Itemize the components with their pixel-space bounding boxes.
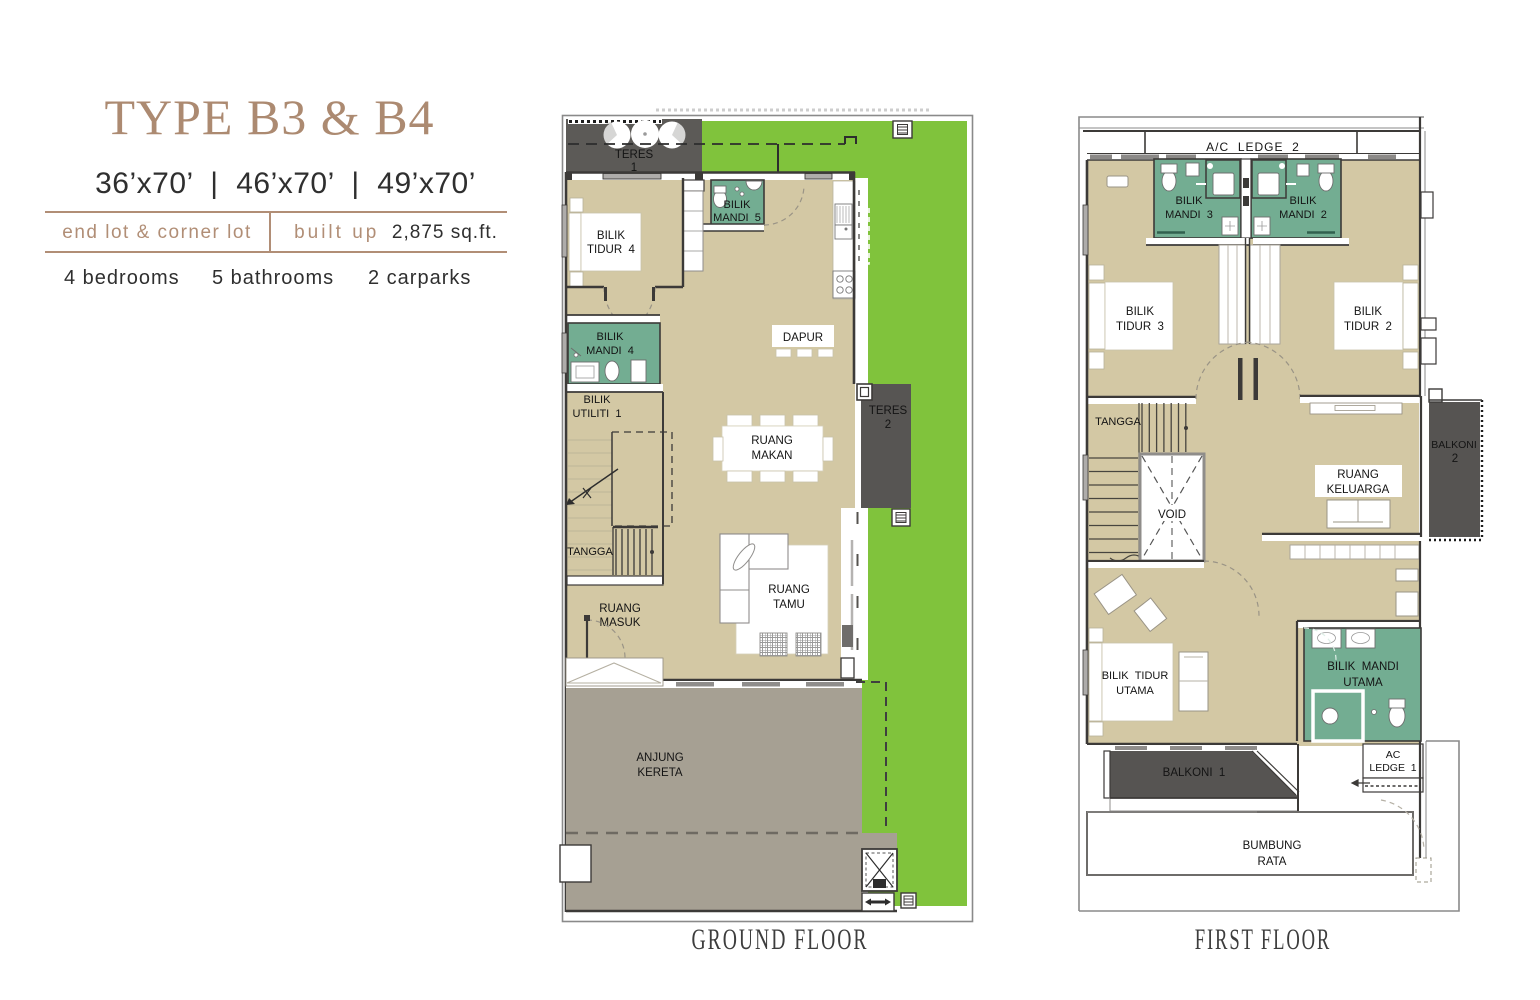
svg-text:BALKONI 1: BALKONI 1 (1163, 767, 1226, 779)
svg-text:BILIK: BILIK (1176, 195, 1204, 207)
svg-text:BUMBUNG: BUMBUNG (1243, 840, 1302, 852)
svg-text:LEDGE 1: LEDGE 1 (1369, 762, 1416, 774)
svg-text:AC: AC (1386, 749, 1401, 761)
svg-text:BILIK: BILIK (1126, 306, 1154, 318)
svg-text:TAMU: TAMU (773, 599, 805, 611)
svg-text:2: 2 (1452, 453, 1458, 465)
svg-text:ANJUNG: ANJUNG (636, 752, 683, 764)
svg-text:RUANG: RUANG (751, 435, 793, 447)
svg-text:RUANG: RUANG (768, 584, 810, 596)
svg-text:TIDUR 4: TIDUR 4 (587, 244, 636, 256)
svg-text:BILIK MANDI: BILIK MANDI (1327, 661, 1399, 673)
svg-text:MANDI 2: MANDI 2 (1279, 209, 1327, 221)
svg-text:MANDI 3: MANDI 3 (1165, 209, 1213, 221)
svg-text:MAKAN: MAKAN (752, 450, 793, 462)
svg-text:TERES: TERES (615, 149, 654, 161)
svg-text:BILIK TIDUR: BILIK TIDUR (1102, 670, 1169, 682)
svg-text:A/C LEDGE 2: A/C LEDGE 2 (1206, 140, 1300, 154)
svg-text:RUANG: RUANG (1337, 469, 1379, 481)
svg-text:RATA: RATA (1258, 856, 1287, 868)
svg-text:VOID: VOID (1158, 509, 1186, 521)
svg-text:2: 2 (885, 419, 891, 431)
svg-text:MANDI 5: MANDI 5 (713, 212, 761, 224)
svg-text:MASUK: MASUK (600, 617, 641, 629)
svg-text:TIDUR 2: TIDUR 2 (1344, 321, 1392, 333)
svg-text:UTILITI 1: UTILITI 1 (573, 408, 622, 420)
svg-text:UTAMA: UTAMA (1343, 677, 1383, 689)
svg-text:BILIK: BILIK (584, 394, 612, 406)
svg-text:TANGGA: TANGGA (567, 546, 613, 558)
svg-text:UTAMA: UTAMA (1116, 685, 1154, 697)
svg-text:BALKONI: BALKONI (1431, 439, 1477, 451)
svg-text:RUANG: RUANG (599, 603, 641, 615)
svg-text:BILIK: BILIK (597, 230, 625, 242)
svg-text:BILIK: BILIK (1354, 306, 1382, 318)
svg-text:TANGGA: TANGGA (1095, 416, 1141, 428)
svg-text:KELUARGA: KELUARGA (1327, 484, 1390, 496)
svg-text:TIDUR 3: TIDUR 3 (1116, 321, 1164, 333)
svg-text:BILIK: BILIK (1290, 195, 1318, 207)
svg-text:KERETA: KERETA (637, 767, 682, 779)
svg-text:MANDI 4: MANDI 4 (586, 345, 634, 357)
svg-text:BILIK: BILIK (724, 199, 752, 211)
svg-text:TERES: TERES (869, 405, 908, 417)
svg-text:BILIK: BILIK (597, 331, 625, 343)
svg-text:DAPUR: DAPUR (783, 332, 823, 344)
